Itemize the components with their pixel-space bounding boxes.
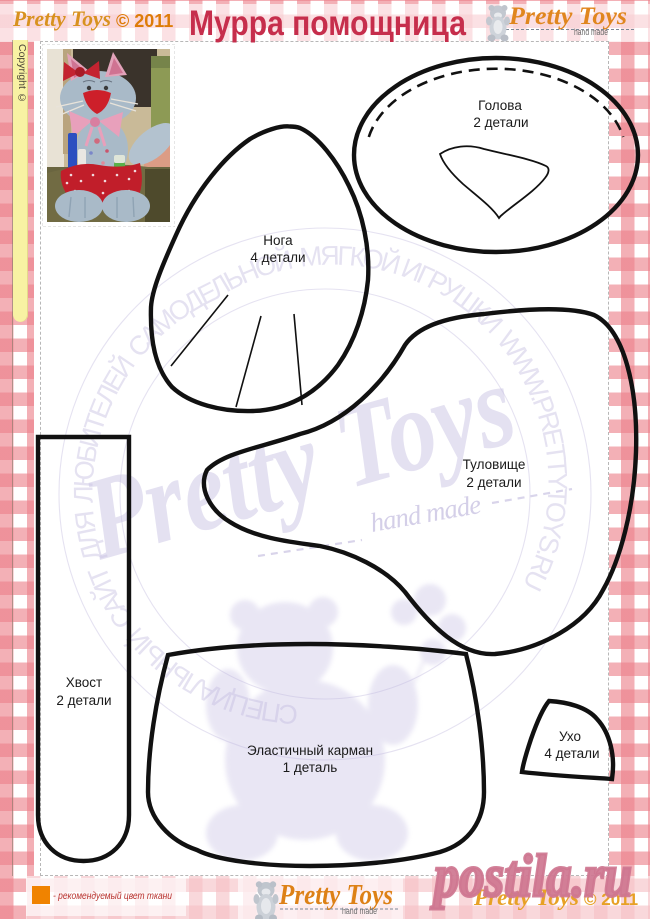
svg-text:hand made: hand made bbox=[574, 27, 608, 37]
svg-text:2 детали: 2 детали bbox=[466, 475, 521, 490]
svg-text:4 детали: 4 детали bbox=[544, 746, 599, 761]
svg-text:2 детали: 2 детали bbox=[56, 693, 111, 708]
svg-text:Ухо: Ухо bbox=[559, 729, 581, 744]
svg-text:Pretty Toys: Pretty Toys bbox=[508, 3, 627, 30]
svg-text:© 2011: © 2011 bbox=[116, 11, 173, 31]
svg-text:Эластичный карман: Эластичный карман bbox=[247, 743, 373, 758]
svg-text:Голова: Голова bbox=[478, 98, 522, 113]
svg-text:Хвост: Хвост bbox=[66, 675, 102, 690]
svg-text:postila.ru: postila.ru bbox=[430, 843, 632, 909]
svg-text:Туловище: Туловище bbox=[463, 457, 526, 472]
svg-text:Нога: Нога bbox=[263, 233, 293, 248]
svg-text:1 деталь: 1 деталь bbox=[283, 760, 338, 775]
svg-text:Мурра помощница: Мурра помощница bbox=[189, 4, 466, 43]
svg-text:4 детали: 4 детали bbox=[250, 250, 305, 265]
svg-text:2 детали: 2 детали bbox=[473, 115, 528, 130]
svg-text:Pretty Toys: Pretty Toys bbox=[12, 6, 111, 31]
